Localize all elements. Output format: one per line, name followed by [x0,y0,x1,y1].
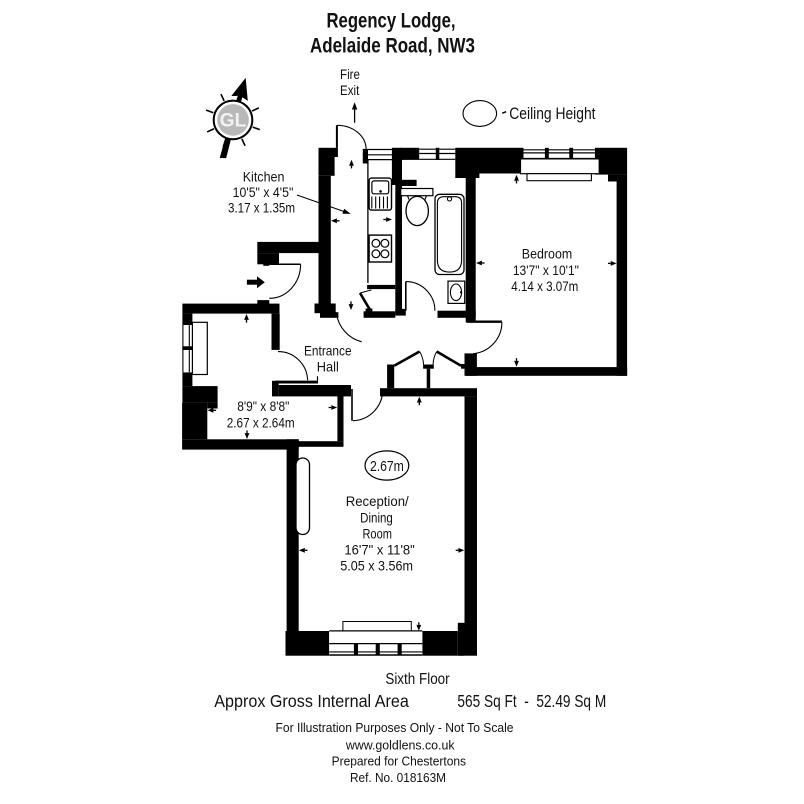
svg-text:Exit: Exit [340,83,359,98]
svg-text:Ceiling Height: Ceiling Height [509,104,595,123]
svg-text:5.05 x 3.56m: 5.05 x 3.56m [340,558,413,574]
svg-text:2.67m: 2.67m [370,458,404,475]
svg-text:Entrance: Entrance [304,342,352,358]
svg-text:Reception/: Reception/ [346,493,409,509]
svg-text:Adelaide Road, NW3: Adelaide Road, NW3 [310,34,475,58]
svg-text:www.goldlens.co.uk: www.goldlens.co.uk [345,737,455,752]
svg-text:Fire: Fire [340,67,360,82]
svg-text:Sixth Floor: Sixth Floor [385,671,450,688]
svg-text:Hall: Hall [317,359,339,375]
svg-text:565 Sq Ft - 52.49 Sq M: 565 Sq Ft - 52.49 Sq M [457,691,606,711]
svg-text:3.17 x 1.35m: 3.17 x 1.35m [228,200,295,216]
svg-text:Regency Lodge,: Regency Lodge, [327,9,456,33]
svg-text:10'5" x 4'5": 10'5" x 4'5" [233,184,294,200]
svg-text:For Illustration Purposes Only: For Illustration Purposes Only - Not To … [276,720,514,735]
svg-text:Kitchen: Kitchen [243,168,285,184]
svg-text:Ref. No. 018163M: Ref. No. 018163M [350,770,446,785]
svg-text:2.67 x 2.64m: 2.67 x 2.64m [227,414,295,430]
svg-text:8'9" x 8'8": 8'9" x 8'8" [237,398,289,414]
svg-text:Approx Gross Internal Area: Approx Gross Internal Area [214,691,409,711]
svg-text:Prepared for Chestertons: Prepared for Chestertons [332,754,467,769]
svg-text:GL: GL [220,111,247,132]
svg-text:Dining: Dining [360,509,393,525]
svg-text:Bedroom: Bedroom [522,246,572,262]
svg-text:4.14 x 3.07m: 4.14 x 3.07m [511,278,578,294]
svg-text:Room: Room [362,525,392,541]
svg-text:13'7" x 10'1": 13'7" x 10'1" [513,262,579,278]
svg-text:16'7" x 11'8": 16'7" x 11'8" [344,542,414,558]
